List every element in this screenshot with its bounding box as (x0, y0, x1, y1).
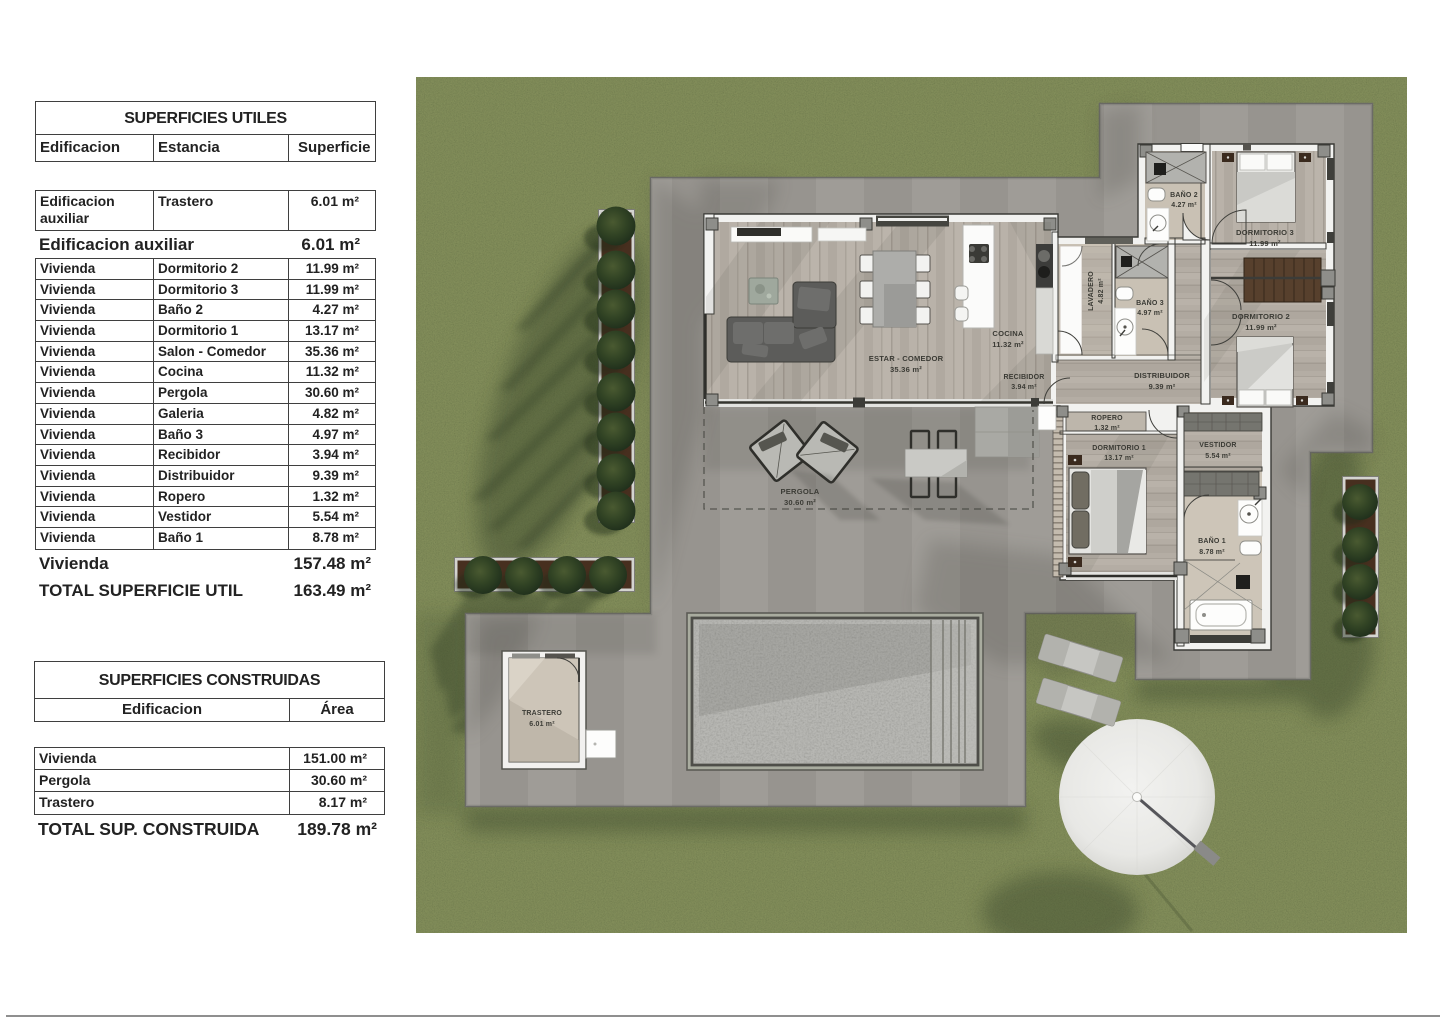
svg-text:ESTAR - COMEDOR: ESTAR - COMEDOR (869, 354, 944, 363)
svg-text:11.99 m²: 11.99 m² (1245, 323, 1277, 332)
svg-text:TRASTERO: TRASTERO (522, 710, 562, 717)
svg-text:COCINA: COCINA (992, 329, 1023, 338)
svg-text:4.27 m²: 4.27 m² (1171, 202, 1197, 209)
svg-text:DORMITORIO 1: DORMITORIO 1 (1092, 445, 1146, 452)
svg-text:11.32 m²: 11.32 m² (992, 340, 1024, 349)
svg-text:5.54 m²: 5.54 m² (1205, 453, 1231, 460)
svg-text:9.39 m²: 9.39 m² (1149, 382, 1176, 391)
svg-text:LAVADERO: LAVADERO (1088, 271, 1095, 311)
svg-text:BAÑO 1: BAÑO 1 (1198, 536, 1226, 545)
svg-text:8.78 m²: 8.78 m² (1199, 549, 1225, 556)
svg-text:1.32 m²: 1.32 m² (1094, 425, 1120, 432)
svg-text:ROPERO: ROPERO (1091, 415, 1123, 422)
svg-text:BAÑO 3: BAÑO 3 (1136, 298, 1164, 307)
svg-text:4.82 m²: 4.82 m² (1098, 278, 1105, 304)
svg-text:RECIBIDOR: RECIBIDOR (1003, 374, 1044, 381)
svg-text:30.60 m²: 30.60 m² (784, 498, 816, 507)
svg-text:4.97 m²: 4.97 m² (1137, 310, 1163, 317)
svg-text:VESTIDOR: VESTIDOR (1199, 442, 1236, 449)
svg-text:6.01 m²: 6.01 m² (529, 721, 555, 728)
svg-text:13.17 m²: 13.17 m² (1104, 455, 1134, 462)
svg-text:DORMITORIO 2: DORMITORIO 2 (1232, 312, 1290, 321)
svg-text:DORMITORIO 3: DORMITORIO 3 (1236, 228, 1294, 237)
svg-text:11.99 m²: 11.99 m² (1249, 239, 1281, 248)
svg-text:3.94 m²: 3.94 m² (1011, 384, 1037, 391)
svg-text:35.36 m²: 35.36 m² (890, 365, 922, 374)
svg-text:DISTRIBUIDOR: DISTRIBUIDOR (1134, 371, 1190, 380)
svg-text:BAÑO 2: BAÑO 2 (1170, 190, 1198, 199)
